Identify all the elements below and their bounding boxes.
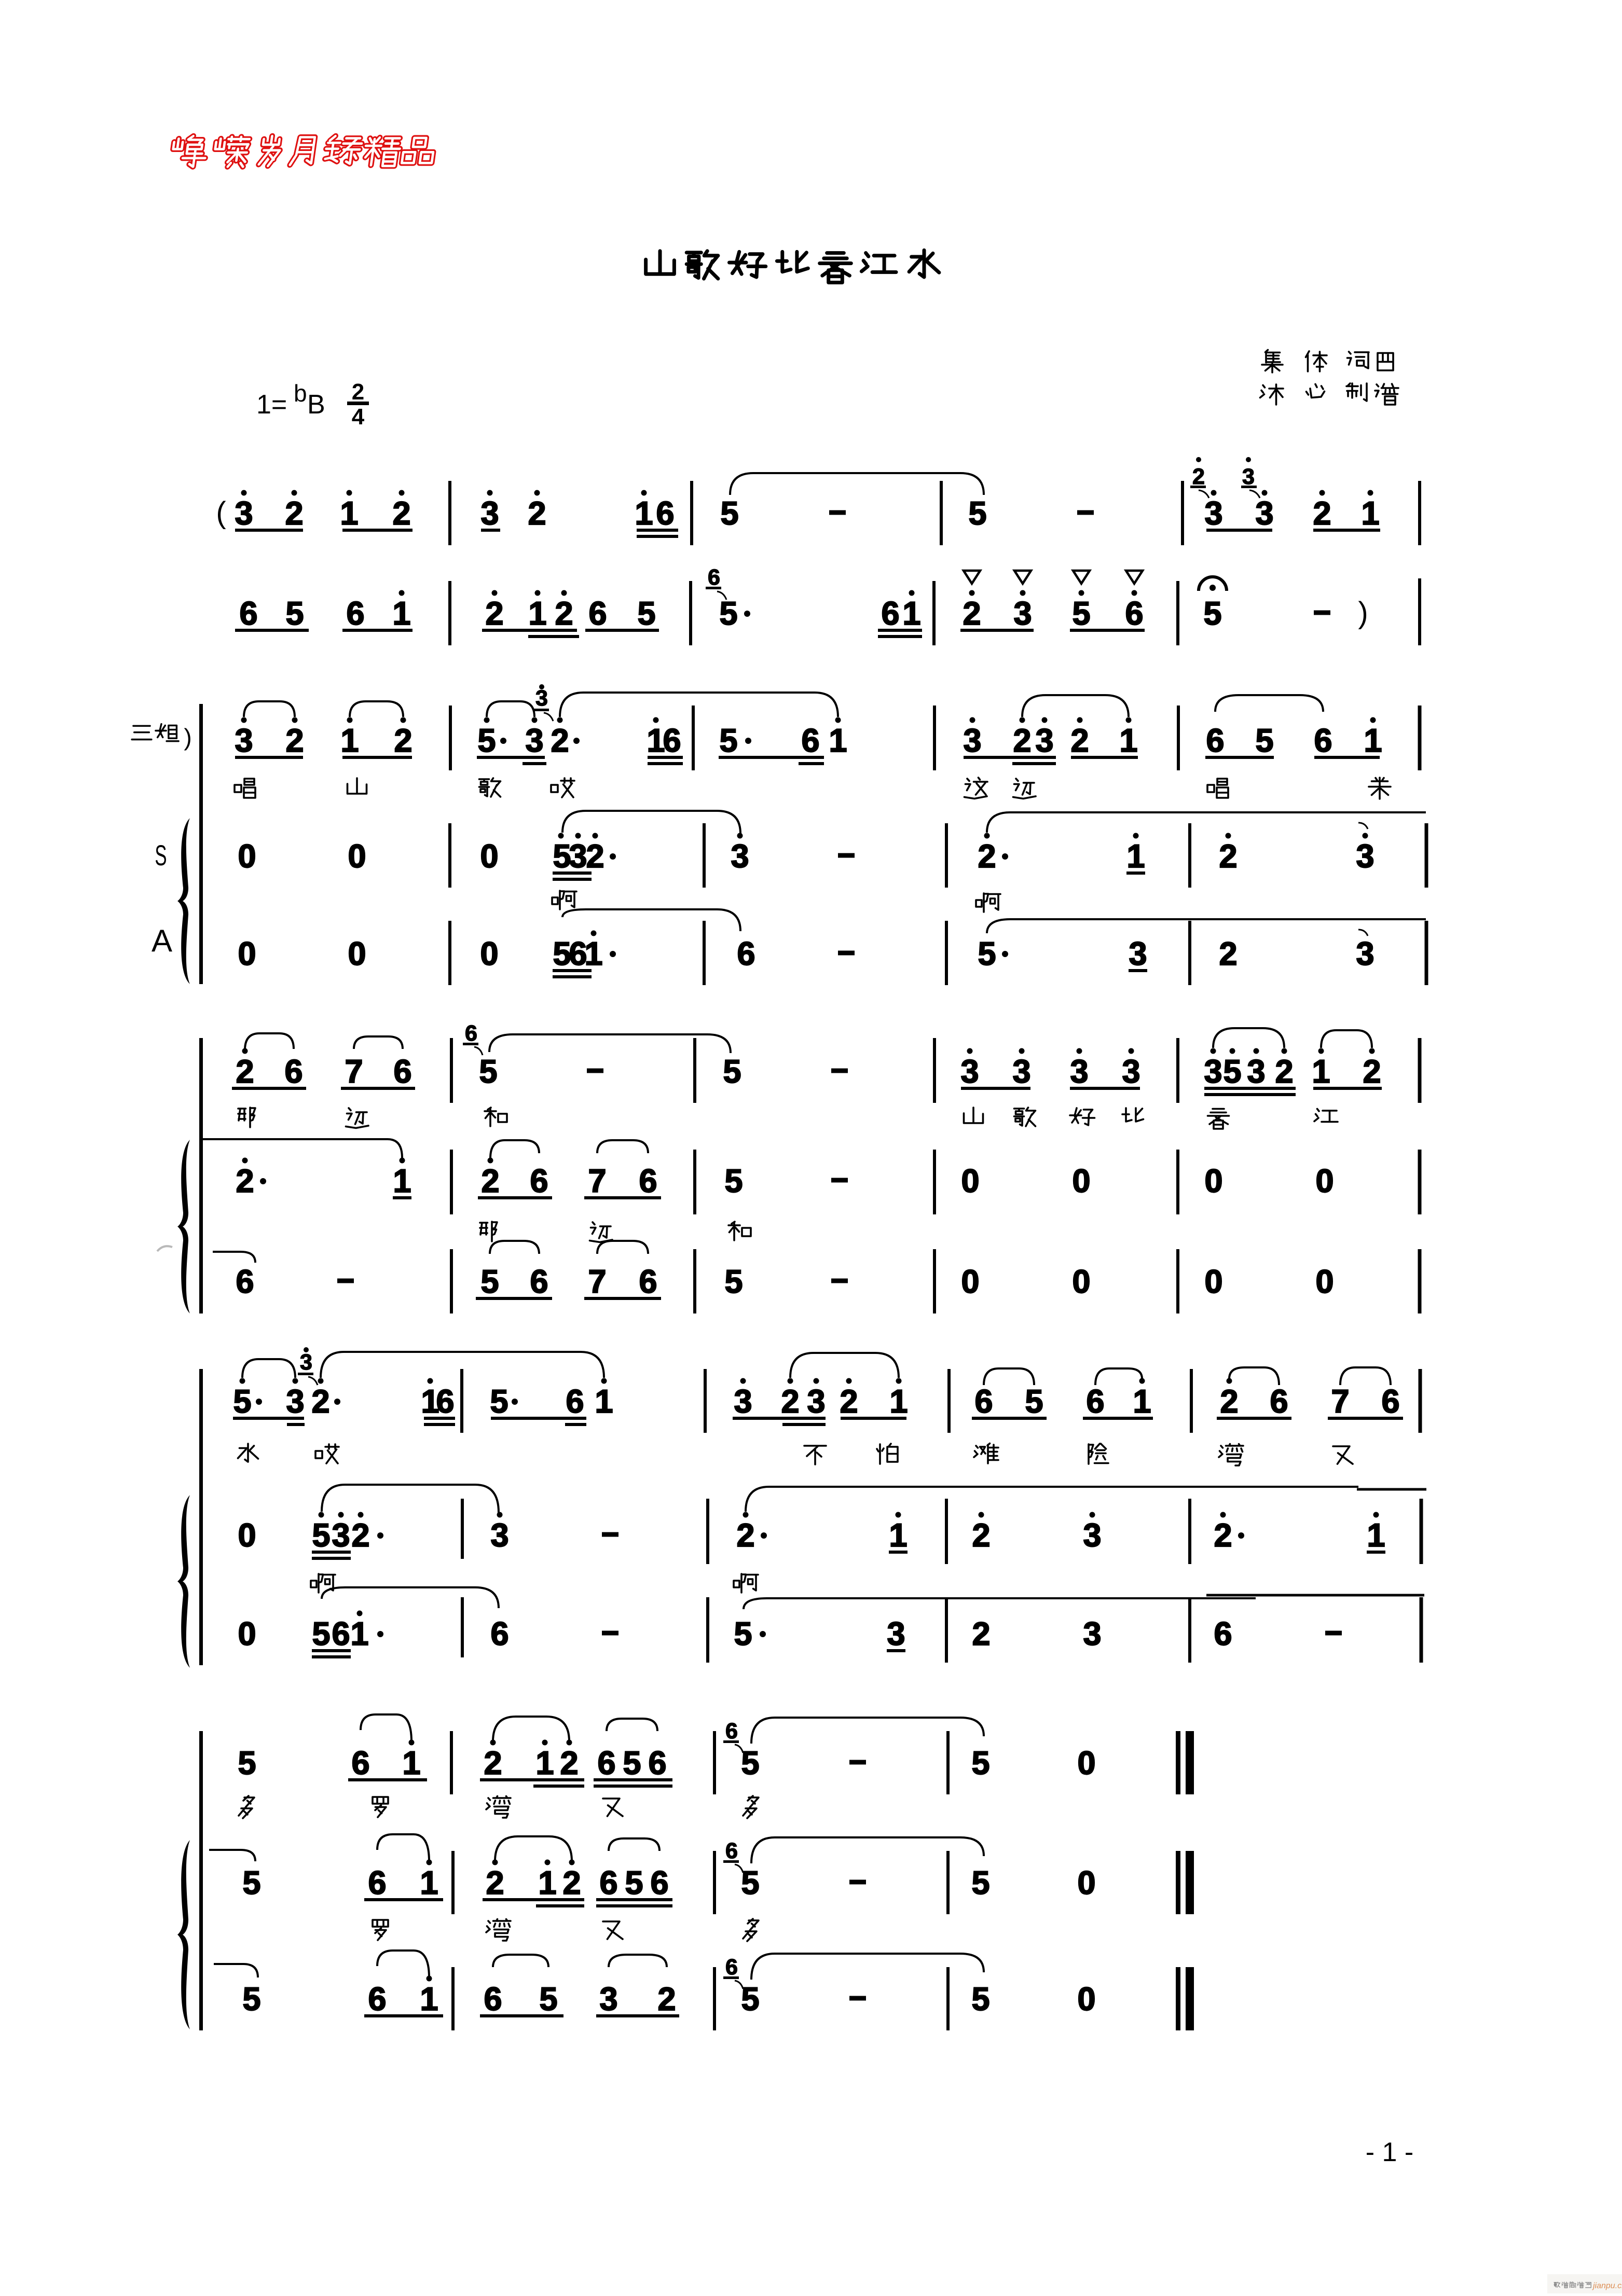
svg-text:2: 2 (484, 1745, 502, 1781)
svg-text:2: 2 (1214, 1517, 1232, 1554)
svg-text:6: 6 (974, 1384, 993, 1420)
svg-text:5: 5 (1025, 1384, 1043, 1420)
svg-text:6: 6 (490, 1616, 508, 1652)
svg-text:2: 2 (236, 1054, 254, 1090)
svg-text:0: 0 (238, 936, 256, 972)
svg-text:7: 7 (588, 1264, 606, 1300)
svg-text:0: 0 (1077, 1865, 1095, 1901)
svg-text:5: 5 (637, 596, 655, 632)
svg-text:6: 6 (588, 596, 607, 632)
svg-text:5: 5 (978, 936, 996, 972)
svg-text:1: 1 (350, 1616, 368, 1652)
svg-text:6: 6 (725, 1955, 738, 1980)
svg-text:3: 3 (731, 838, 749, 875)
svg-text:2: 2 (394, 723, 412, 759)
svg-text:6: 6 (436, 1384, 454, 1420)
svg-text:2: 2 (972, 1616, 990, 1652)
svg-text:3: 3 (1204, 495, 1222, 532)
svg-text:5: 5 (719, 723, 737, 759)
svg-text:3: 3 (235, 495, 253, 532)
svg-text:5: 5 (741, 1745, 759, 1781)
svg-text:2: 2 (560, 1745, 578, 1781)
svg-text:5: 5 (968, 495, 986, 532)
svg-text:0: 0 (1077, 1745, 1095, 1781)
svg-text:): ) (1358, 596, 1368, 630)
svg-text:3: 3 (1122, 1054, 1140, 1090)
svg-text:3: 3 (332, 1517, 350, 1554)
svg-text:5: 5 (480, 1264, 499, 1300)
svg-text:5: 5 (479, 1054, 497, 1090)
svg-text:1: 1 (1361, 495, 1379, 532)
svg-text:5: 5 (242, 1865, 260, 1901)
svg-text:): ) (184, 724, 191, 751)
svg-text:0: 0 (1315, 1264, 1334, 1300)
svg-text:0: 0 (1204, 1163, 1222, 1199)
svg-text:2: 2 (1220, 1384, 1238, 1420)
svg-text:2: 2 (1219, 838, 1237, 875)
svg-text:0: 0 (1315, 1163, 1334, 1199)
svg-text:2: 2 (351, 1517, 369, 1554)
svg-text:1: 1 (393, 1163, 411, 1199)
svg-text:6: 6 (530, 1264, 548, 1300)
svg-text:5: 5 (312, 1616, 330, 1652)
svg-text:5: 5 (734, 1616, 752, 1652)
svg-text:2: 2 (528, 495, 546, 532)
svg-text:0: 0 (238, 1616, 256, 1652)
svg-text:1: 1 (1119, 723, 1137, 759)
svg-text:5: 5 (971, 1745, 989, 1781)
svg-text:6: 6 (484, 1981, 502, 2017)
svg-text:jianpu.cn: jianpu.cn (1592, 2281, 1622, 2290)
svg-text:0: 0 (961, 1163, 979, 1199)
svg-text:5: 5 (233, 1384, 251, 1420)
svg-text:1: 1 (340, 723, 359, 759)
svg-text:6: 6 (284, 1054, 303, 1090)
svg-text:3: 3 (286, 1384, 304, 1420)
svg-text:6: 6 (393, 1054, 411, 1090)
svg-text:1: 1 (402, 1745, 420, 1781)
svg-text:5: 5 (242, 1981, 260, 2017)
svg-text:1: 1 (889, 1384, 908, 1420)
svg-text:6: 6 (346, 596, 364, 632)
svg-text:6: 6 (648, 1745, 666, 1781)
svg-text:2: 2 (972, 1517, 990, 1554)
svg-text:6: 6 (351, 1745, 369, 1781)
svg-text:1: 1 (584, 936, 602, 972)
svg-text:3: 3 (960, 1054, 979, 1090)
svg-text:3: 3 (525, 723, 543, 759)
svg-text:2: 2 (285, 723, 304, 759)
svg-text:6: 6 (368, 1865, 386, 1901)
svg-text:1: 1 (1126, 838, 1145, 875)
svg-text:6: 6 (599, 1865, 617, 1901)
svg-text:3: 3 (1356, 936, 1374, 972)
svg-text:1: 1 (1364, 723, 1382, 759)
svg-text:1: 1 (1367, 1517, 1385, 1554)
svg-text:1: 1 (538, 1865, 556, 1901)
svg-text:5: 5 (553, 936, 571, 972)
svg-text:1: 1 (647, 723, 665, 759)
svg-text:1: 1 (420, 1865, 438, 1901)
svg-text:3: 3 (1204, 1054, 1222, 1090)
svg-text:6: 6 (566, 1384, 584, 1420)
svg-text:6: 6 (1125, 596, 1143, 632)
svg-text:0: 0 (480, 838, 498, 875)
svg-text:3: 3 (1242, 464, 1255, 489)
svg-text:5: 5 (285, 596, 304, 632)
svg-text:5: 5 (720, 495, 738, 532)
svg-text:0: 0 (1077, 1981, 1095, 2017)
svg-text:2: 2 (781, 1384, 799, 1420)
svg-text:2: 2 (1363, 1054, 1381, 1090)
svg-text:1: 1 (528, 596, 546, 632)
svg-text:1: 1 (1133, 1384, 1151, 1420)
svg-text:5: 5 (238, 1745, 256, 1781)
svg-text:6: 6 (1206, 723, 1224, 759)
svg-text:5: 5 (719, 596, 737, 632)
svg-text:6: 6 (332, 1616, 350, 1652)
svg-text:1: 1 (829, 723, 847, 759)
svg-text:5: 5 (1203, 596, 1221, 632)
svg-text:5: 5 (724, 1163, 743, 1199)
svg-text:6: 6 (639, 1264, 657, 1300)
svg-text:5: 5 (539, 1981, 557, 2017)
svg-text:3: 3 (1356, 838, 1374, 875)
svg-text:2: 2 (555, 596, 573, 632)
svg-text:6: 6 (1381, 1384, 1399, 1420)
svg-text:0: 0 (348, 936, 366, 972)
svg-text:2: 2 (1013, 723, 1031, 759)
svg-text:1: 1 (1312, 1054, 1330, 1090)
svg-text:6: 6 (656, 495, 674, 532)
svg-text:0: 0 (1072, 1163, 1090, 1199)
svg-text:2: 2 (551, 723, 569, 759)
svg-text:2: 2 (485, 596, 503, 632)
svg-text:0: 0 (480, 936, 498, 972)
svg-text:5: 5 (623, 1745, 641, 1781)
svg-text:6: 6 (1086, 1384, 1104, 1420)
svg-text:6: 6 (737, 936, 755, 972)
svg-text:5: 5 (490, 1384, 508, 1420)
svg-text:5: 5 (553, 838, 571, 875)
svg-text:5: 5 (723, 1054, 741, 1090)
svg-text:2: 2 (1275, 1054, 1293, 1090)
svg-text:2: 2 (352, 379, 364, 405)
svg-text:4: 4 (352, 404, 365, 430)
svg-text:5: 5 (1255, 723, 1273, 759)
svg-text:B: B (307, 390, 325, 420)
svg-text:6: 6 (663, 723, 681, 759)
svg-text:6: 6 (368, 1981, 386, 2017)
svg-text:0: 0 (348, 838, 366, 875)
svg-text:2: 2 (392, 495, 410, 532)
svg-text:3: 3 (734, 1384, 752, 1420)
svg-text:S: S (155, 839, 167, 872)
svg-text:0: 0 (1204, 1264, 1222, 1300)
svg-text:7: 7 (345, 1054, 363, 1090)
svg-text:1: 1 (340, 495, 358, 532)
svg-text:5: 5 (625, 1865, 643, 1901)
svg-text:6: 6 (239, 596, 257, 632)
svg-text:5: 5 (312, 1517, 330, 1554)
svg-text:1: 1 (635, 495, 653, 532)
svg-text:6: 6 (881, 596, 899, 632)
svg-text:3: 3 (535, 686, 548, 711)
svg-text:2: 2 (562, 1865, 581, 1901)
svg-text:6: 6 (597, 1745, 615, 1781)
svg-text:6: 6 (725, 1838, 738, 1863)
svg-text:3: 3 (1083, 1517, 1101, 1554)
svg-text:5: 5 (971, 1981, 989, 2017)
svg-text:0: 0 (238, 1517, 256, 1554)
svg-text:6: 6 (708, 565, 720, 590)
svg-text:1: 1 (889, 1517, 907, 1554)
svg-text:2: 2 (840, 1384, 858, 1420)
svg-text:6: 6 (1270, 1384, 1288, 1420)
svg-text:3: 3 (1013, 596, 1032, 632)
svg-text:5: 5 (477, 723, 496, 759)
svg-text:b: b (294, 380, 307, 407)
svg-text:1: 1 (595, 1384, 613, 1420)
svg-text:6: 6 (465, 1021, 477, 1046)
svg-text:3: 3 (1129, 936, 1147, 972)
svg-text:A: A (152, 923, 172, 958)
svg-text:3: 3 (1083, 1616, 1101, 1652)
svg-text:6: 6 (530, 1163, 548, 1199)
svg-text:(: ( (216, 496, 226, 530)
svg-text:7: 7 (588, 1163, 606, 1199)
svg-text:3: 3 (235, 723, 253, 759)
svg-text:3: 3 (1255, 495, 1273, 532)
svg-text:3: 3 (1012, 1054, 1030, 1090)
svg-text:1: 1 (420, 1981, 438, 2017)
svg-text:5: 5 (724, 1264, 743, 1300)
svg-text:5: 5 (1223, 1054, 1241, 1090)
svg-text:3: 3 (300, 1350, 312, 1375)
svg-text:3: 3 (1035, 723, 1053, 759)
svg-text:2: 2 (657, 1981, 676, 2017)
svg-text:5: 5 (741, 1981, 759, 2017)
svg-text:1=: 1= (256, 390, 287, 420)
svg-text:1: 1 (392, 596, 410, 632)
svg-text:1: 1 (535, 1745, 554, 1781)
svg-text:2: 2 (486, 1865, 504, 1901)
svg-text:6: 6 (639, 1163, 657, 1199)
svg-text:2: 2 (1313, 495, 1331, 532)
svg-text:2: 2 (1192, 464, 1205, 489)
svg-text:0: 0 (961, 1264, 979, 1300)
svg-text:6: 6 (236, 1264, 254, 1300)
svg-text:3: 3 (963, 723, 981, 759)
svg-text:6: 6 (650, 1865, 668, 1901)
svg-text:3: 3 (480, 495, 499, 532)
svg-text:3: 3 (569, 838, 587, 875)
svg-text:6: 6 (1314, 723, 1332, 759)
svg-text:- 1 -: - 1 - (1366, 2137, 1413, 2167)
svg-text:0: 0 (238, 838, 256, 875)
svg-text:5: 5 (971, 1865, 989, 1901)
svg-text:6: 6 (1214, 1616, 1232, 1652)
svg-text:7: 7 (1331, 1384, 1349, 1420)
svg-text:2: 2 (1070, 723, 1089, 759)
svg-text:3: 3 (887, 1616, 905, 1652)
svg-text:3: 3 (1247, 1054, 1265, 1090)
svg-text:2: 2 (736, 1517, 754, 1554)
svg-text:3: 3 (599, 1981, 617, 2017)
svg-text:3: 3 (490, 1517, 508, 1554)
svg-text:0: 0 (1072, 1264, 1090, 1300)
svg-text:2: 2 (1219, 936, 1237, 972)
svg-text:3: 3 (1070, 1054, 1088, 1090)
svg-text:6: 6 (801, 723, 819, 759)
svg-text:2: 2 (481, 1163, 499, 1199)
svg-text:5: 5 (1072, 596, 1090, 632)
svg-text:2: 2 (978, 838, 996, 875)
svg-text:2: 2 (236, 1163, 254, 1199)
svg-text:2: 2 (285, 495, 303, 532)
svg-text:3: 3 (807, 1384, 825, 1420)
svg-text:1: 1 (902, 596, 920, 632)
svg-text:2: 2 (586, 838, 604, 875)
svg-text:6: 6 (725, 1719, 738, 1744)
svg-text:2: 2 (311, 1384, 329, 1420)
svg-text:5: 5 (741, 1865, 759, 1901)
svg-text:2: 2 (963, 596, 981, 632)
